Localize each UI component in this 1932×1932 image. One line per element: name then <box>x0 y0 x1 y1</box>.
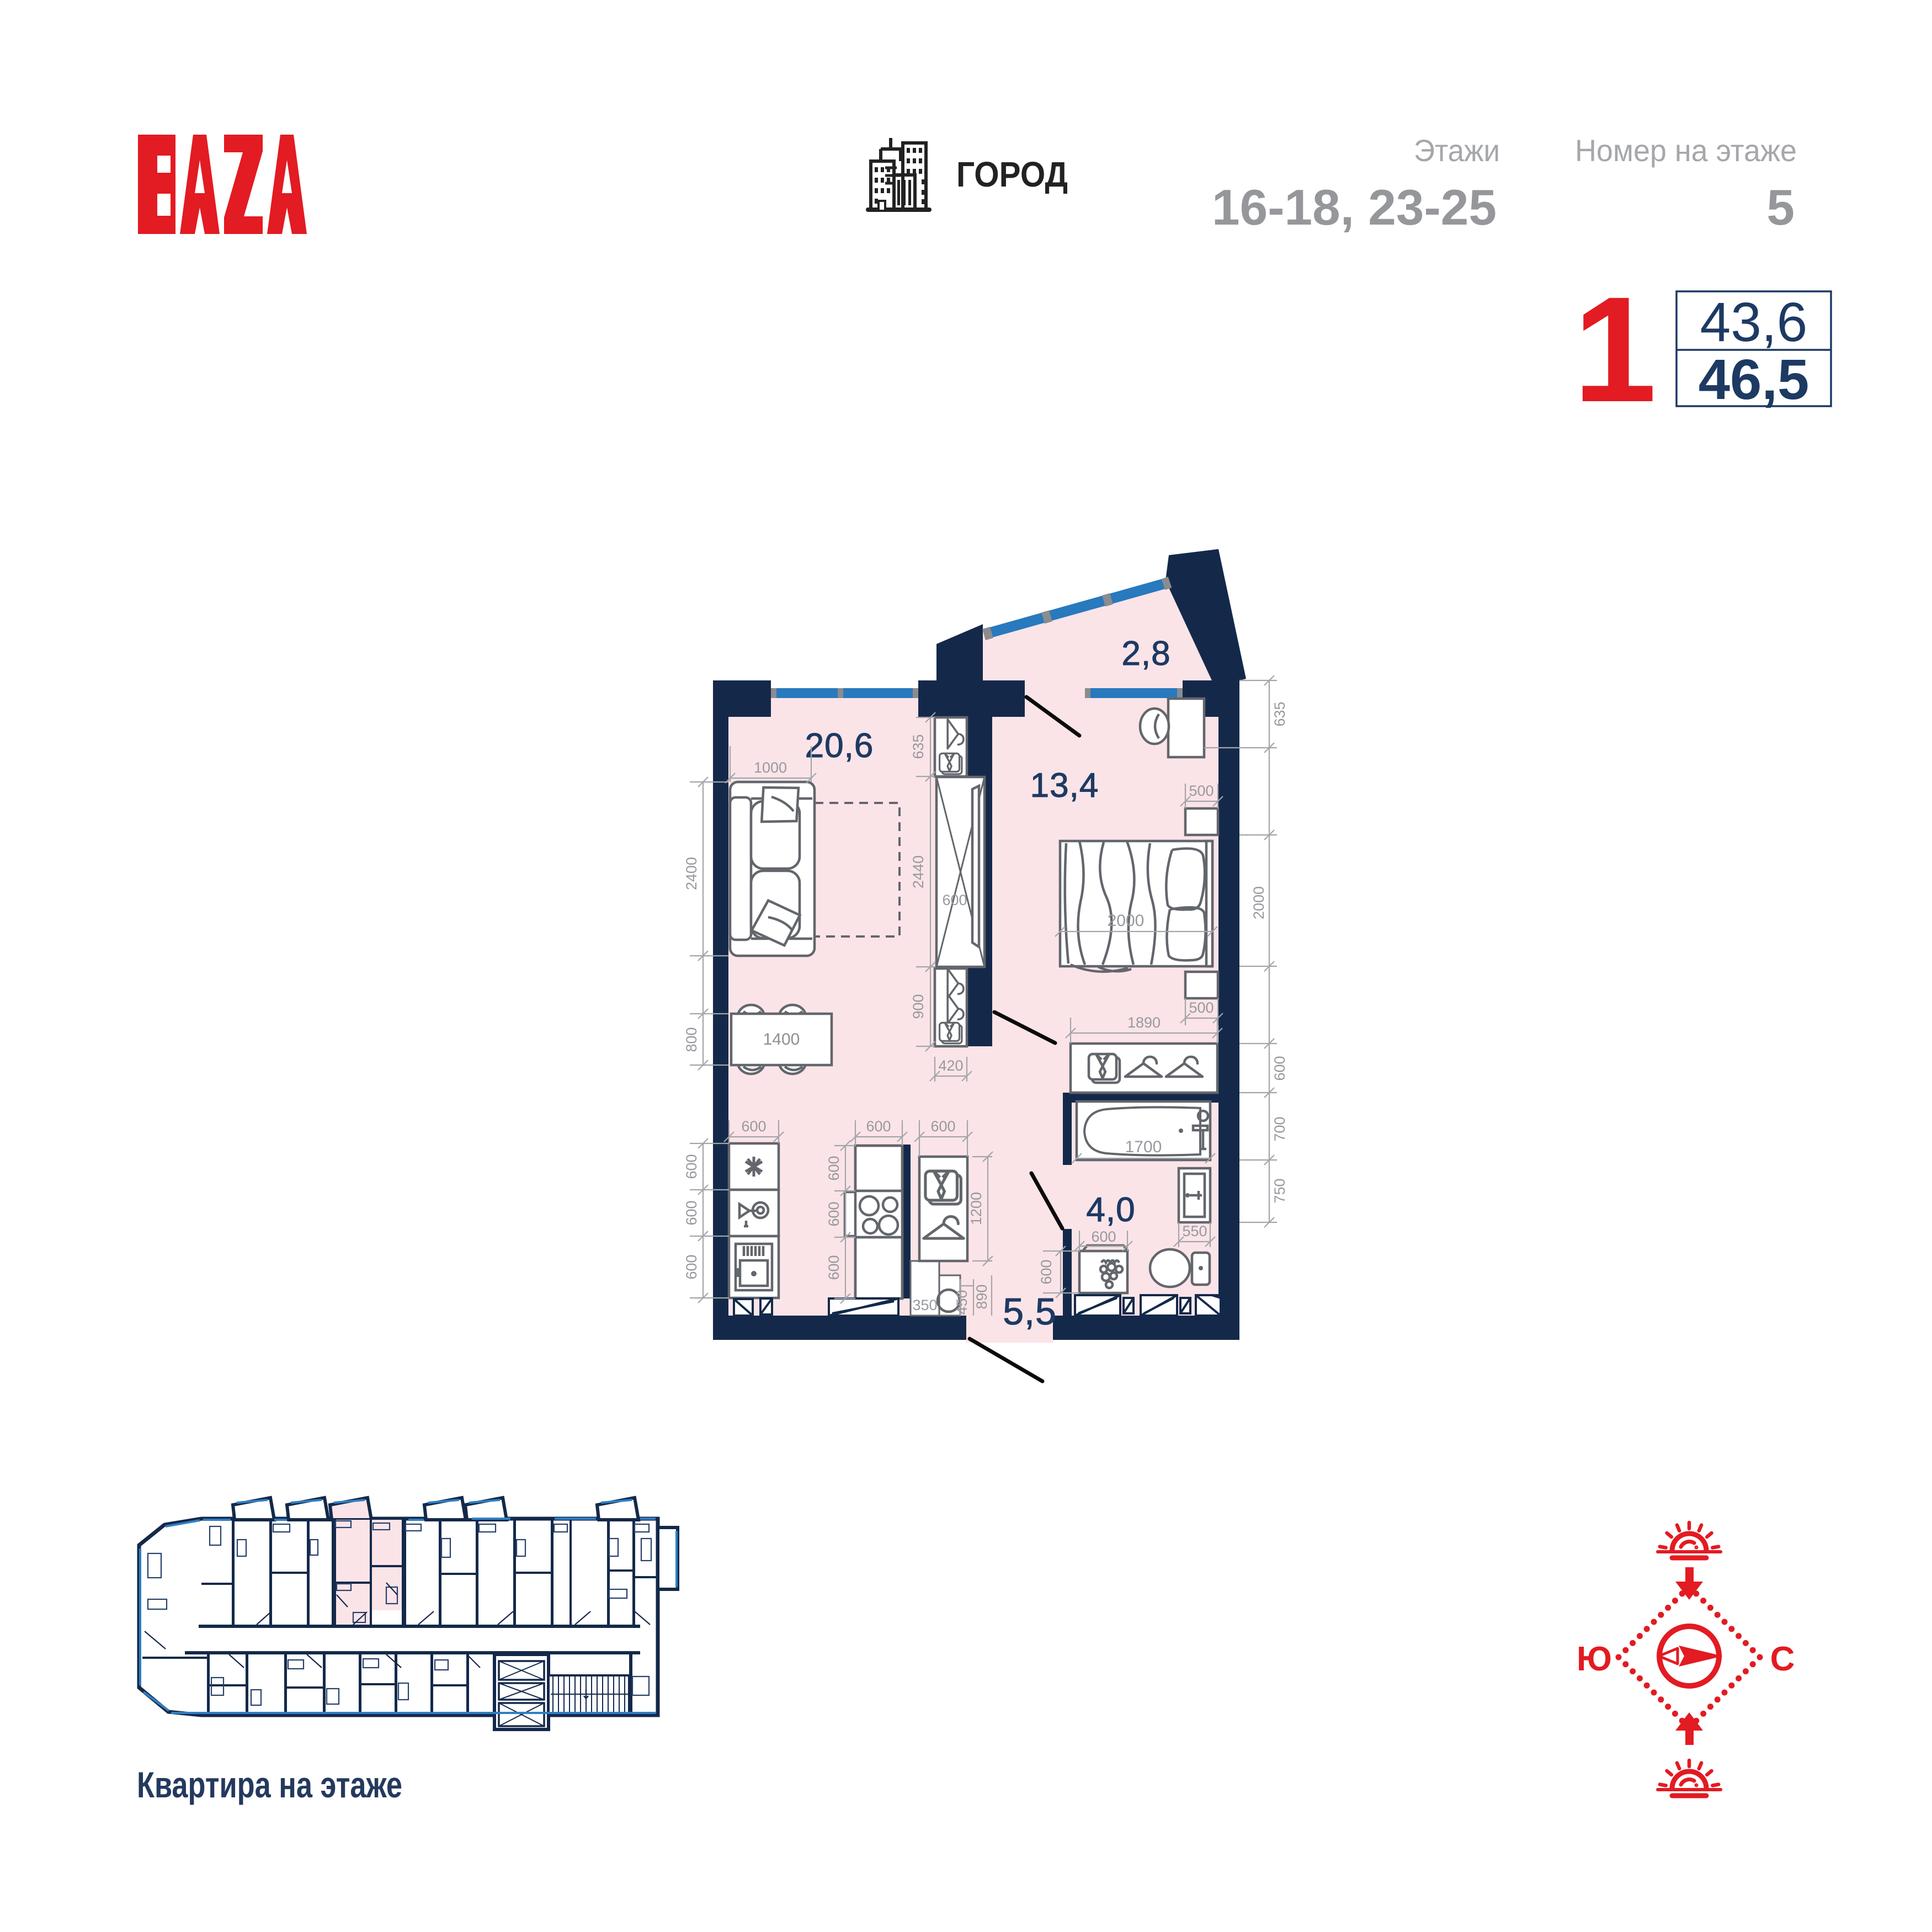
svg-text:Квартира на этаже: Квартира на этаже <box>137 1764 402 1805</box>
svg-text:1400: 1400 <box>763 1030 800 1049</box>
svg-text:890: 890 <box>973 1284 990 1309</box>
svg-text:700: 700 <box>1271 1116 1288 1141</box>
svg-text:1000: 1000 <box>754 759 787 776</box>
svg-text:Ю: Ю <box>1577 1640 1612 1678</box>
svg-text:600: 600 <box>826 1156 842 1180</box>
svg-text:2400: 2400 <box>683 857 700 890</box>
svg-text:1890: 1890 <box>1127 1014 1161 1031</box>
svg-text:20,6: 20,6 <box>805 727 874 765</box>
svg-text:420: 420 <box>938 1057 963 1074</box>
svg-text:С: С <box>1770 1640 1795 1678</box>
svg-text:750: 750 <box>1271 1178 1288 1203</box>
svg-text:Номер на этаже: Номер на этаже <box>1575 133 1797 168</box>
svg-text:600: 600 <box>1271 1056 1288 1081</box>
svg-text:500: 500 <box>1189 783 1214 799</box>
svg-text:1700: 1700 <box>1125 1138 1162 1156</box>
svg-text:635: 635 <box>1271 701 1288 726</box>
svg-text:600: 600 <box>930 1118 955 1135</box>
svg-text:600: 600 <box>866 1118 891 1135</box>
svg-text:600: 600 <box>683 1254 700 1279</box>
svg-text:46,5: 46,5 <box>1699 348 1809 411</box>
svg-text:2000: 2000 <box>1250 886 1267 919</box>
svg-text:1200: 1200 <box>968 1192 984 1225</box>
svg-text:600: 600 <box>826 1255 842 1280</box>
svg-text:500: 500 <box>1189 999 1214 1016</box>
svg-text:2,8: 2,8 <box>1121 635 1170 673</box>
svg-text:13,4: 13,4 <box>1030 767 1099 805</box>
svg-text:ГОРОД: ГОРОД <box>956 155 1068 194</box>
svg-text:5: 5 <box>1766 180 1795 236</box>
svg-text:600: 600 <box>683 1154 700 1179</box>
svg-text:800: 800 <box>683 1027 700 1052</box>
svg-text:1: 1 <box>1573 265 1657 433</box>
svg-text:350: 350 <box>912 1297 937 1313</box>
svg-text:635: 635 <box>910 734 927 759</box>
svg-text:5,5: 5,5 <box>1003 1291 1057 1333</box>
svg-text:2000: 2000 <box>1108 912 1145 930</box>
svg-text:600: 600 <box>942 892 967 908</box>
svg-text:4,0: 4,0 <box>1086 1191 1135 1229</box>
svg-text:600: 600 <box>683 1200 700 1225</box>
svg-text:600: 600 <box>1091 1228 1116 1245</box>
svg-text:600: 600 <box>826 1201 842 1226</box>
svg-text:450: 450 <box>954 1290 970 1314</box>
svg-text:900: 900 <box>910 994 927 1019</box>
svg-text:2440: 2440 <box>910 855 927 888</box>
svg-text:600: 600 <box>741 1118 766 1135</box>
svg-text:Этажи: Этажи <box>1414 133 1500 168</box>
svg-text:600: 600 <box>1038 1259 1055 1284</box>
svg-text:550: 550 <box>1182 1223 1207 1239</box>
svg-text:16-18, 23-25: 16-18, 23-25 <box>1212 180 1497 236</box>
svg-text:43,6: 43,6 <box>1700 291 1808 353</box>
